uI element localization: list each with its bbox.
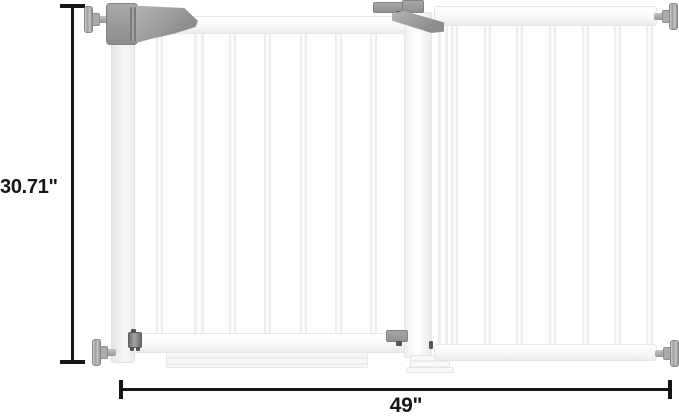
gate-bar [264, 30, 271, 340]
gate-left-post [111, 15, 135, 363]
pressure-knob-hub-bottom-left [100, 346, 108, 359]
door-hinge-bottom-left [128, 332, 142, 348]
latch-handle-top-left [136, 5, 198, 43]
width-dimension-label: 49" [356, 394, 456, 416]
pressure-knob-bottom-left [92, 339, 101, 366]
hinge-foot [130, 347, 134, 351]
gate-bottom-rail-left [130, 333, 406, 353]
gate-threshold-bar [166, 352, 368, 368]
gate-bar [516, 22, 523, 348]
gate-bar [484, 22, 491, 348]
width-dimension-cap-left [119, 380, 123, 399]
gate-bar [549, 22, 556, 348]
gate-bar [614, 22, 621, 348]
gate-bar [582, 22, 589, 348]
gate-bar [300, 30, 307, 340]
product-dimension-illustration: 30.71" 49" [0, 0, 679, 416]
gate-bar [451, 22, 458, 348]
gate-extension-stile [438, 22, 448, 348]
height-dimension-line [71, 5, 74, 363]
width-dimension-cap-right [668, 380, 672, 399]
pressure-knob-bottom-right [670, 340, 679, 367]
gate-bar [370, 30, 377, 340]
gate-middle-post [404, 12, 432, 358]
gate-top-rail-right [434, 6, 657, 26]
pressure-knob-hub-top-left [92, 13, 100, 26]
height-dimension-label: 30.71" [0, 176, 66, 198]
height-dimension-cap-top [60, 4, 85, 8]
latch-receiver-raised-middle [402, 0, 424, 13]
pressure-knob-top-right [669, 3, 678, 30]
hinge-foot [136, 347, 140, 351]
width-dimension-line [121, 388, 671, 391]
gate-bottom-rail-right [434, 344, 657, 361]
pressure-knob-top-left [84, 6, 93, 33]
gate-door-stile [194, 30, 204, 340]
hinge-pin-top [131, 329, 136, 333]
gate-bar [646, 22, 653, 348]
latch-box-foot [396, 341, 402, 346]
gate-bar [229, 30, 236, 340]
height-dimension-cap-bottom [60, 360, 85, 364]
gate-bar [156, 30, 163, 340]
gate-bar [335, 30, 342, 340]
gate-middle-post-base-step [406, 367, 454, 373]
post-pin-bottom-middle [429, 341, 433, 349]
